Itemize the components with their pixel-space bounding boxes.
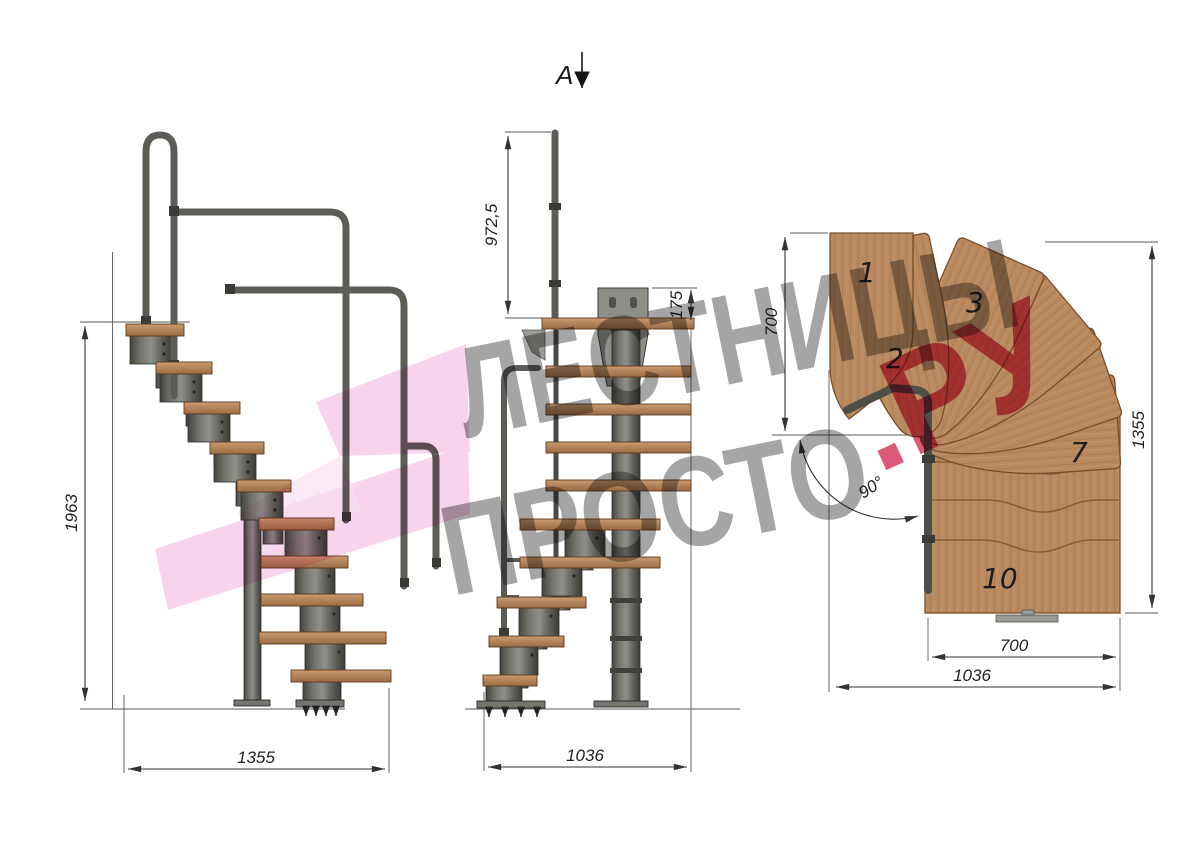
floor-mount-tab (1022, 610, 1034, 615)
staircase-drawing-page: 1963 1355 A (0, 0, 1200, 849)
side-elevation-view: 1963 1355 (62, 135, 441, 773)
floor-mount (996, 615, 1058, 622)
handrail-left (499, 368, 538, 636)
plan-length-dimension: 1355 (1129, 411, 1148, 449)
modular-staircase-technical-drawing: 1963 1355 A (0, 0, 1200, 849)
step-number-10: 10 (982, 562, 1018, 595)
base-plate (234, 700, 270, 706)
section-label: A (554, 60, 573, 90)
central-column (612, 330, 640, 701)
turn-angle-arc (800, 440, 918, 519)
anchor-bolts (306, 710, 336, 716)
support-post (244, 492, 261, 700)
plan-view: 1 2 3 7 10 90° 700 1355 700 1036 (762, 232, 1158, 692)
bracket-dimension: 175 (667, 290, 686, 319)
anchor-bolts (489, 711, 537, 717)
side-width-dimension: 1355 (237, 748, 275, 767)
treads (483, 318, 694, 686)
side-height-dimension: 1963 (62, 494, 81, 532)
flight-width-dimension: 700 (1000, 636, 1029, 655)
base-plate (594, 701, 648, 707)
front-width-dimension: 1036 (566, 746, 604, 765)
turn-angle-label: 90° (855, 472, 887, 502)
base-plate (477, 701, 545, 708)
rail-height-dimension: 972,5 (482, 203, 501, 246)
entry-depth-dimension: 700 (762, 307, 781, 336)
handrail-segment (406, 446, 436, 566)
step-number-1: 1 (858, 256, 876, 289)
step-number-2: 2 (886, 342, 904, 375)
step-number-3: 3 (966, 286, 984, 319)
front-elevation-view: A (465, 52, 740, 772)
plan-width-dimension: 1036 (953, 666, 991, 685)
step-number-7: 7 (1070, 436, 1088, 469)
watermark-text-line2: ПРОСТО (429, 397, 881, 623)
base-plate (296, 700, 344, 707)
